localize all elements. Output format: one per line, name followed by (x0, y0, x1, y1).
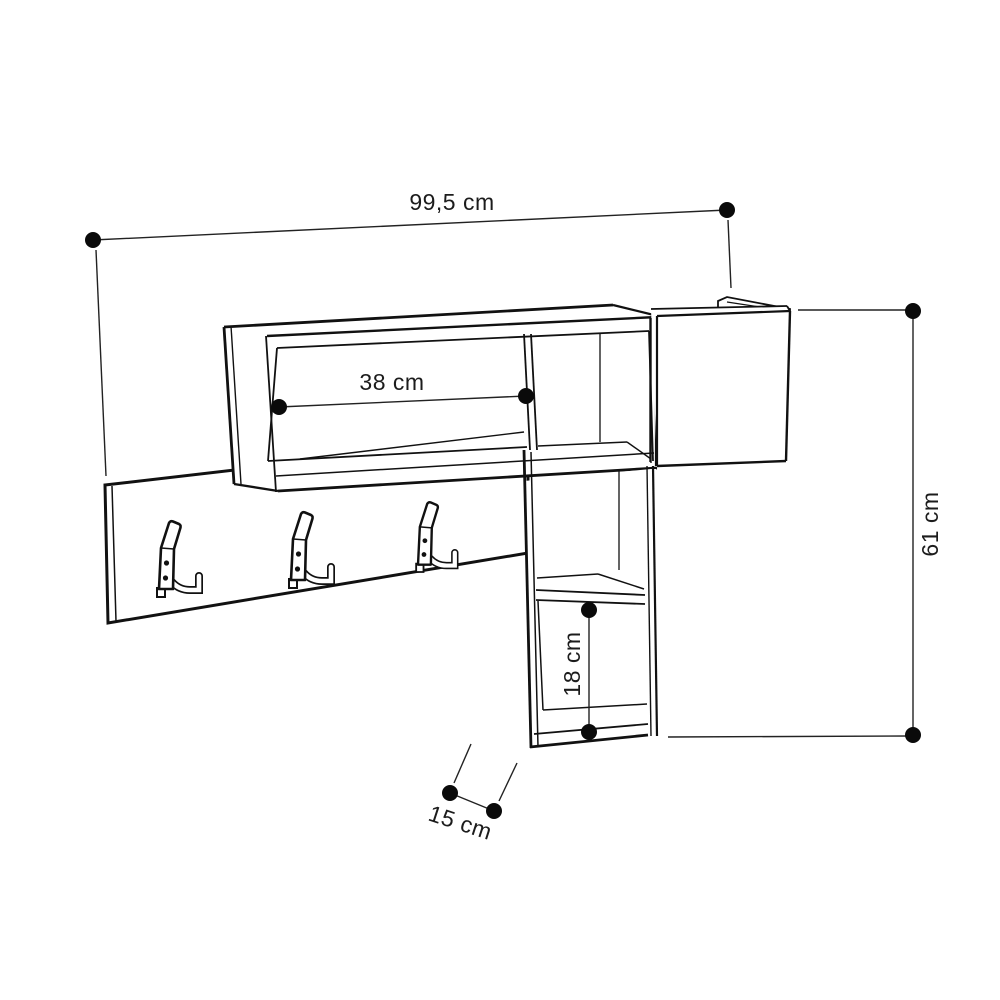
overall-width-label: 99,5 cm (409, 189, 494, 215)
lower-shelf-column (524, 450, 657, 748)
furniture-dimension-diagram: 99,5 cm 38 cm 61 cm 18 cm (0, 0, 1000, 1000)
diagram-canvas: 99,5 cm 38 cm 61 cm 18 cm (0, 0, 1000, 1000)
dimension-dot (905, 303, 921, 319)
right-cabinet-box (651, 297, 790, 466)
dimension-dot (719, 202, 735, 218)
shelf-inner-width-label: 38 cm (359, 369, 424, 395)
dimension-dot (518, 388, 534, 404)
overall-height-label: 61 cm (917, 491, 943, 556)
dimension-dot (85, 232, 101, 248)
dimension-dot (905, 727, 921, 743)
dimension-dot (442, 785, 458, 801)
dimension-dot (581, 724, 597, 740)
dimension-dot (486, 803, 502, 819)
dimension-dot (581, 602, 597, 618)
upper-shelf-unit (224, 305, 658, 492)
compartment-height-label: 18 cm (559, 631, 585, 696)
dimension-dot (271, 399, 287, 415)
dimension-depth: 15 cm (425, 744, 517, 845)
